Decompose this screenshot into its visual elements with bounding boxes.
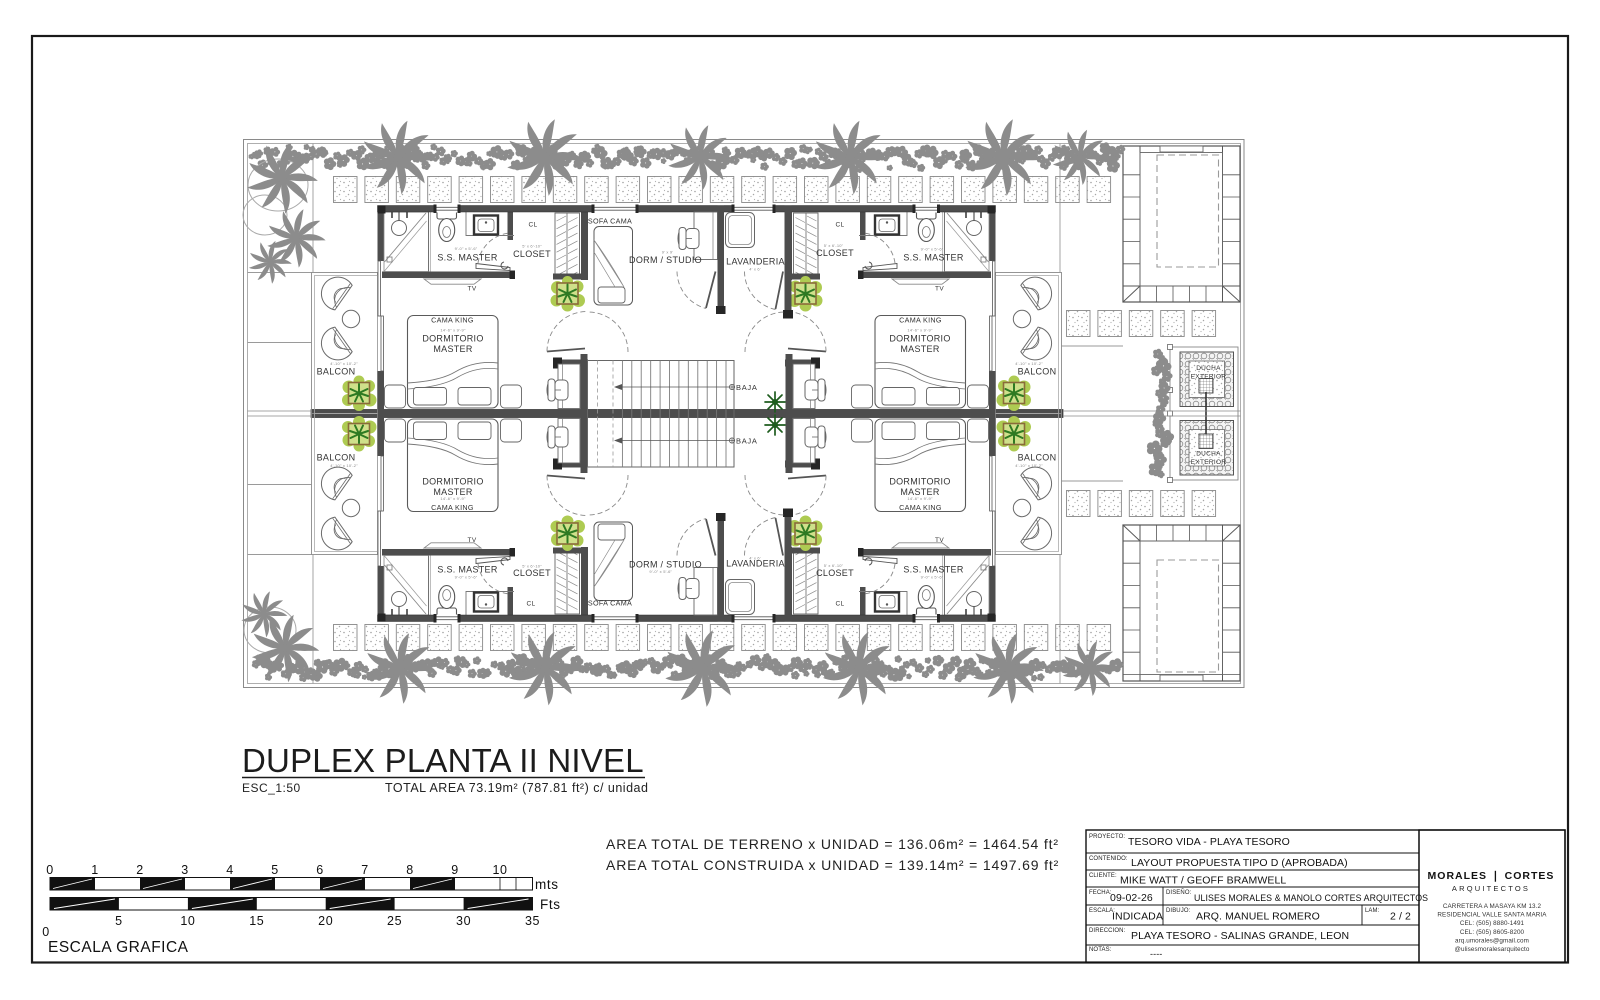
svg-text:ARQ. MANUEL ROMERO: ARQ. MANUEL ROMERO xyxy=(1196,911,1320,923)
svg-text:AREA TOTAL CONSTRUIDA x UNIDAD: AREA TOTAL CONSTRUIDA x UNIDAD = 139.14m… xyxy=(606,857,1059,873)
svg-text:DUPLEX PLANTA II NIVEL: DUPLEX PLANTA II NIVEL xyxy=(242,742,644,779)
svg-text:BAJA: BAJA xyxy=(736,383,758,392)
svg-text:4'-10" x 10'-2": 4'-10" x 10'-2" xyxy=(1015,361,1043,366)
svg-text:30: 30 xyxy=(456,914,471,928)
svg-text:9' x 9': 9' x 9' xyxy=(662,250,674,255)
svg-text:6: 6 xyxy=(316,863,324,877)
svg-text:ESC_1:50: ESC_1:50 xyxy=(242,781,301,795)
svg-text:4' x 6': 4' x 6' xyxy=(749,556,761,561)
svg-text:TV: TV xyxy=(468,286,477,293)
svg-text:CAMA KING: CAMA KING xyxy=(899,503,942,512)
svg-text:CARRETERA A MASAYA KM 13.2: CARRETERA A MASAYA KM 13.2 xyxy=(1443,903,1542,910)
svg-text:2: 2 xyxy=(136,863,144,877)
svg-text:DIRECCION:: DIRECCION: xyxy=(1089,928,1126,934)
svg-text:TESORO VIDA - PLAYA TESORO: TESORO VIDA - PLAYA TESORO xyxy=(1128,836,1290,848)
svg-text:10: 10 xyxy=(492,863,507,877)
svg-text:14'-6" x 9'-9": 14'-6" x 9'-9" xyxy=(440,496,466,501)
svg-text:TV: TV xyxy=(468,537,477,544)
svg-text:TV: TV xyxy=(935,286,944,293)
svg-text:CLOSET: CLOSET xyxy=(513,568,551,578)
svg-text:25: 25 xyxy=(387,914,402,928)
svg-text:ARQUITECTOS: ARQUITECTOS xyxy=(1452,884,1530,893)
svg-text:DISEÑO:: DISEÑO: xyxy=(1166,889,1192,896)
svg-text:20: 20 xyxy=(318,914,333,928)
svg-text:ESCALA GRAFICA: ESCALA GRAFICA xyxy=(48,939,189,956)
svg-text:CAMA KING: CAMA KING xyxy=(431,316,474,325)
svg-text:9'-0" x 5'-6": 9'-0" x 5'-6" xyxy=(921,575,944,580)
svg-text:1: 1 xyxy=(91,863,99,877)
svg-text:2 / 2: 2 / 2 xyxy=(1390,911,1411,923)
svg-text:BALCON: BALCON xyxy=(317,453,356,463)
svg-text:----: ---- xyxy=(1150,949,1162,959)
svg-text:4' x 6': 4' x 6' xyxy=(749,267,761,272)
svg-text:5: 5 xyxy=(271,863,279,877)
svg-text:CEL: (505) 8880-1491: CEL: (505) 8880-1491 xyxy=(1460,920,1525,927)
svg-text:CAMA KING: CAMA KING xyxy=(431,503,474,512)
svg-text:4: 4 xyxy=(226,863,234,877)
svg-text:7: 7 xyxy=(361,863,369,877)
svg-text:LAVANDERIA: LAVANDERIA xyxy=(726,257,785,267)
svg-text:DORMITORIO: DORMITORIO xyxy=(422,477,483,487)
svg-text:DIBUJO:: DIBUJO: xyxy=(1166,908,1191,914)
svg-text:5' x 6'-10": 5' x 6'-10" xyxy=(522,244,542,249)
svg-text:CL: CL xyxy=(836,601,845,608)
svg-text:@ulisesmoralesarquitecto: @ulisesmoralesarquitecto xyxy=(1455,946,1530,953)
svg-text:CEL: (505) 8605-8200: CEL: (505) 8605-8200 xyxy=(1460,929,1525,936)
svg-text:CAMA KING: CAMA KING xyxy=(899,316,942,325)
svg-text:CL: CL xyxy=(836,222,845,229)
svg-text:DORMITORIO: DORMITORIO xyxy=(889,477,950,487)
svg-text:9'-0" x 5'-6": 9'-0" x 5'-6" xyxy=(455,246,478,251)
svg-text:MORALES ❘ CORTES: MORALES ❘ CORTES xyxy=(1428,870,1555,882)
svg-text:CLOSET: CLOSET xyxy=(513,249,551,259)
svg-text:CONTENIDO:: CONTENIDO: xyxy=(1089,856,1128,862)
svg-text:CL: CL xyxy=(529,222,538,229)
svg-text:MASTER: MASTER xyxy=(433,344,473,354)
svg-text:BALCON: BALCON xyxy=(1018,453,1057,463)
svg-text:5' x 6'-10": 5' x 6'-10" xyxy=(522,564,542,569)
svg-text:ULISES MORALES & MANOLO CORTES: ULISES MORALES & MANOLO CORTES ARQUITECT… xyxy=(1194,893,1428,903)
svg-text:MASTER: MASTER xyxy=(900,344,940,354)
svg-text:3: 3 xyxy=(181,863,189,877)
svg-text:14'-6" x 9'-9": 14'-6" x 9'-9" xyxy=(440,328,466,333)
svg-text:DORM / STUDIO: DORM / STUDIO xyxy=(629,255,702,265)
svg-text:AREA TOTAL DE TERRENO x UNIDAD: AREA TOTAL DE TERRENO x UNIDAD = 136.06m… xyxy=(606,836,1059,852)
svg-text:5' x 6'-10": 5' x 6'-10" xyxy=(824,243,844,248)
svg-text:S.S. MASTER: S.S. MASTER xyxy=(903,253,964,263)
svg-text:15: 15 xyxy=(249,914,264,928)
svg-text:4'-10" x 10'-2": 4'-10" x 10'-2" xyxy=(1015,463,1043,468)
svg-text:4'-10" x 10'-2": 4'-10" x 10'-2" xyxy=(330,361,358,366)
svg-text:LAM:: LAM: xyxy=(1365,908,1380,914)
svg-text:TV: TV xyxy=(935,537,944,544)
svg-text:DORMITORIO: DORMITORIO xyxy=(422,334,483,344)
svg-text:5' x 6'-10": 5' x 6'-10" xyxy=(824,563,844,568)
svg-text:DUCHA: DUCHA xyxy=(1196,365,1221,372)
svg-text:9'-0" x 5'-6": 9'-0" x 5'-6" xyxy=(455,575,478,580)
svg-text:S.S. MASTER: S.S. MASTER xyxy=(903,565,964,575)
svg-text:RESIDENCIAL VALLE SANTA MARIA: RESIDENCIAL VALLE SANTA MARIA xyxy=(1437,912,1547,919)
svg-text:LAYOUT PROPUESTA TIPO D (APROB: LAYOUT PROPUESTA TIPO D (APROBADA) xyxy=(1131,857,1348,869)
svg-text:Fts: Fts xyxy=(540,897,561,912)
svg-text:MIKE WATT / GEOFF BRAMWELL: MIKE WATT / GEOFF BRAMWELL xyxy=(1120,875,1286,887)
svg-text:PLAYA TESORO - SALINAS GRANDE,: PLAYA TESORO - SALINAS GRANDE, LEON xyxy=(1131,930,1349,942)
svg-text:NOTAS:: NOTAS: xyxy=(1089,947,1112,953)
svg-text:DUCHA: DUCHA xyxy=(1196,451,1221,458)
svg-text:9: 9 xyxy=(451,863,459,877)
svg-text:CLOSET: CLOSET xyxy=(816,248,854,258)
svg-text:CLOSET: CLOSET xyxy=(816,568,854,578)
svg-text:SOFA CAMA: SOFA CAMA xyxy=(588,217,632,226)
svg-text:0: 0 xyxy=(46,863,54,877)
svg-text:SOFA CAMA: SOFA CAMA xyxy=(588,599,632,608)
svg-text:9'-0" x 5'-6": 9'-0" x 5'-6" xyxy=(649,569,672,574)
svg-text:CLIENTE:: CLIENTE: xyxy=(1089,873,1117,879)
svg-text:4'-10" x 10'-2": 4'-10" x 10'-2" xyxy=(330,463,358,468)
svg-text:5: 5 xyxy=(115,914,123,928)
svg-text:8: 8 xyxy=(406,863,414,877)
svg-text:BALCON: BALCON xyxy=(1018,367,1057,377)
svg-text:EXTERIOR: EXTERIOR xyxy=(1191,459,1227,466)
svg-text:EXTERIOR: EXTERIOR xyxy=(1191,374,1227,381)
svg-text:S.S. MASTER: S.S. MASTER xyxy=(437,565,498,575)
svg-text:9'-0" x 5'-6": 9'-0" x 5'-6" xyxy=(921,247,944,252)
svg-text:BALCON: BALCON xyxy=(317,367,356,377)
svg-text:CL: CL xyxy=(527,601,536,608)
svg-text:0: 0 xyxy=(42,925,50,939)
svg-text:INDICADA: INDICADA xyxy=(1112,911,1163,923)
svg-text:TOTAL AREA 73.19m² (787.81 ft²: TOTAL AREA 73.19m² (787.81 ft²) c/ unida… xyxy=(385,781,648,795)
svg-text:mts: mts xyxy=(535,877,559,892)
svg-text:S.S. MASTER: S.S. MASTER xyxy=(437,253,498,263)
svg-text:PROYECTO:: PROYECTO: xyxy=(1089,834,1125,840)
svg-text:DORM / STUDIO: DORM / STUDIO xyxy=(629,560,702,570)
svg-text:35: 35 xyxy=(525,914,540,928)
svg-text:BAJA: BAJA xyxy=(736,437,758,446)
svg-text:FECHA:: FECHA: xyxy=(1089,890,1112,896)
svg-text:DORMITORIO: DORMITORIO xyxy=(889,334,950,344)
svg-text:09-02-26: 09-02-26 xyxy=(1110,892,1153,904)
svg-text:14'-6" x 9'-9": 14'-6" x 9'-9" xyxy=(907,496,933,501)
svg-text:arq.umorales@gmail.com: arq.umorales@gmail.com xyxy=(1455,937,1529,944)
svg-text:10: 10 xyxy=(180,914,195,928)
svg-text:14'-6" x 9'-9": 14'-6" x 9'-9" xyxy=(907,328,933,333)
